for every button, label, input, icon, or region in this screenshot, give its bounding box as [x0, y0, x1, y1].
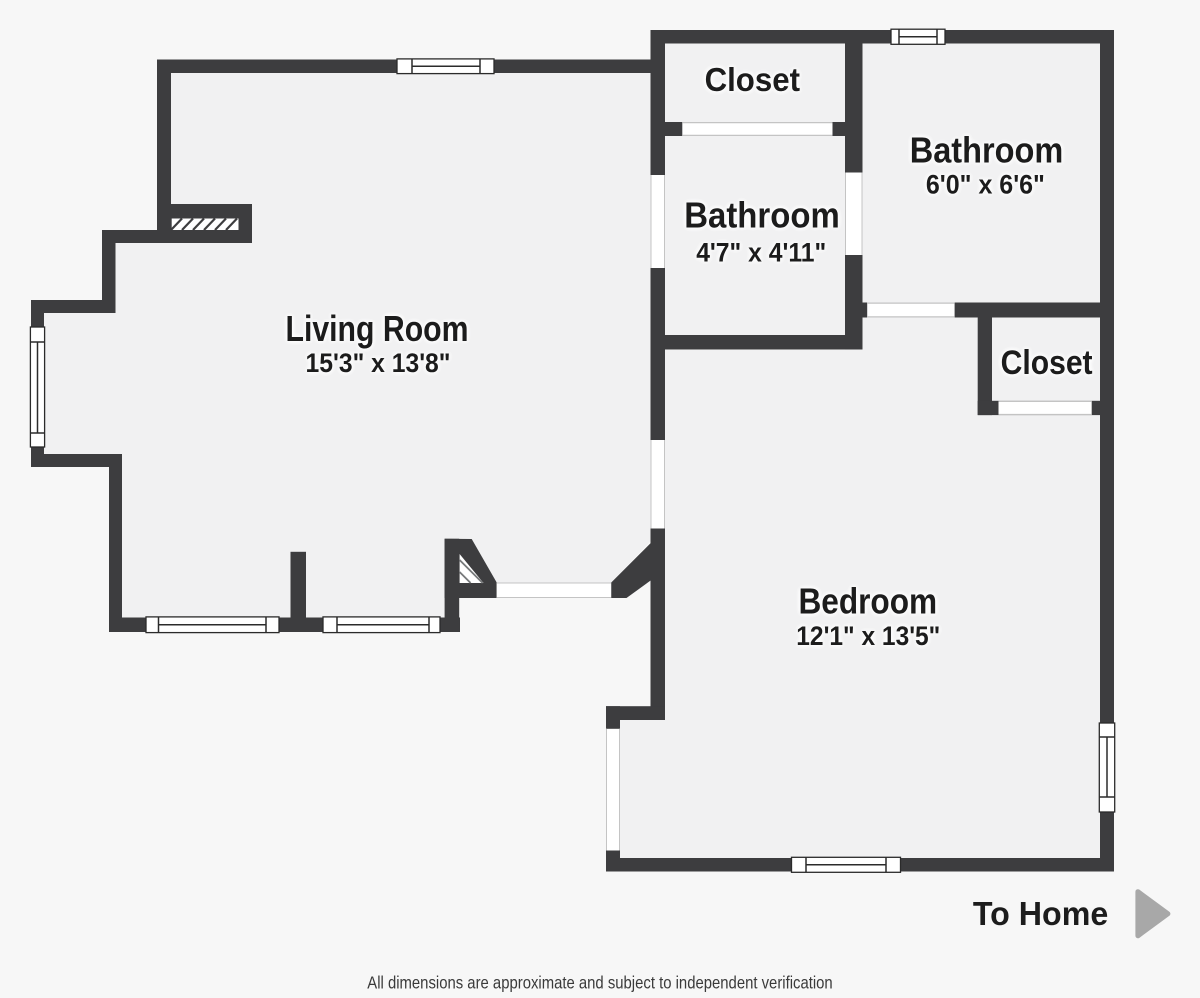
svg-text:Living Room: Living Room — [286, 308, 469, 349]
svg-text:6'0" x 6'6": 6'0" x 6'6" — [926, 170, 1045, 200]
svg-text:4'7" x 4'11": 4'7" x 4'11" — [696, 237, 826, 267]
svg-text:Closet: Closet — [1001, 344, 1093, 382]
svg-text:Closet: Closet — [705, 61, 800, 98]
svg-text:12'1" x 13'5": 12'1" x 13'5" — [796, 621, 940, 651]
svg-text:Bathroom: Bathroom — [910, 130, 1064, 171]
svg-text:To Home: To Home — [973, 895, 1108, 932]
svg-text:Bedroom: Bedroom — [798, 580, 937, 621]
svg-text:Bathroom: Bathroom — [684, 194, 840, 235]
svg-text:15'3" x 13'8": 15'3" x 13'8" — [306, 348, 451, 378]
svg-text:All dimensions are approximate: All dimensions are approximate and subje… — [367, 972, 832, 992]
